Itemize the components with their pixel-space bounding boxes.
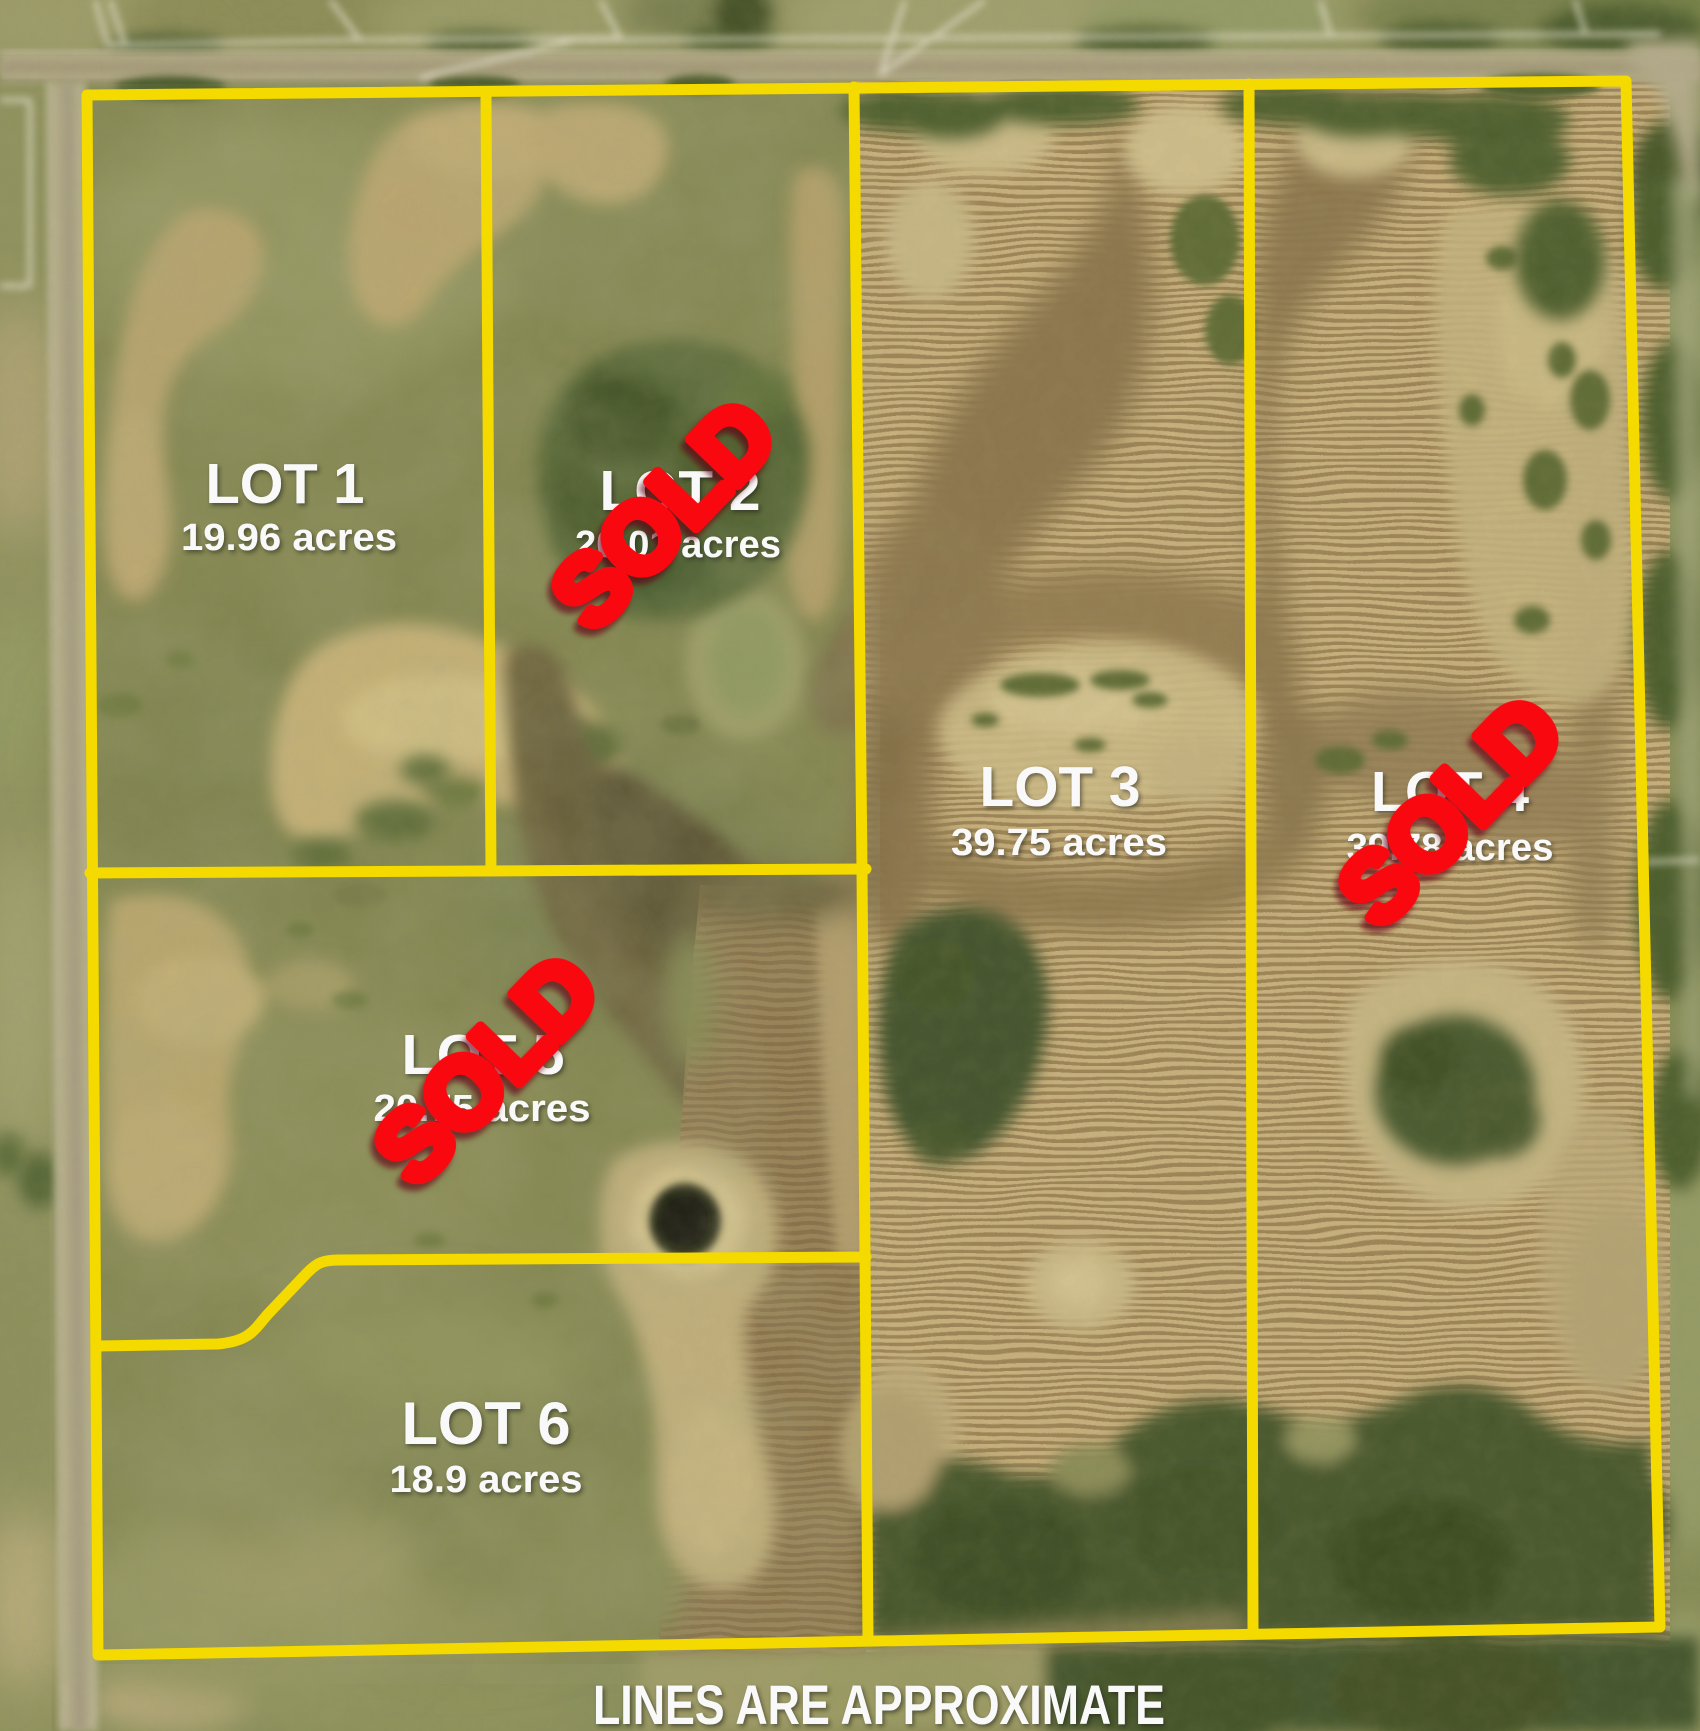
svg-text:39.75 acres: 39.75 acres xyxy=(951,822,1167,864)
svg-text:19.96 acres: 19.96 acres xyxy=(181,517,397,559)
svg-text:LINES ARE APPROXIMATE: LINES ARE APPROXIMATE xyxy=(593,1673,1165,1731)
svg-text:18.9 acres: 18.9 acres xyxy=(390,1459,583,1501)
svg-text:LOT 1: LOT 1 xyxy=(206,452,365,516)
svg-text:LOT 6: LOT 6 xyxy=(402,1390,571,1457)
svg-text:LOT 3: LOT 3 xyxy=(980,755,1141,819)
